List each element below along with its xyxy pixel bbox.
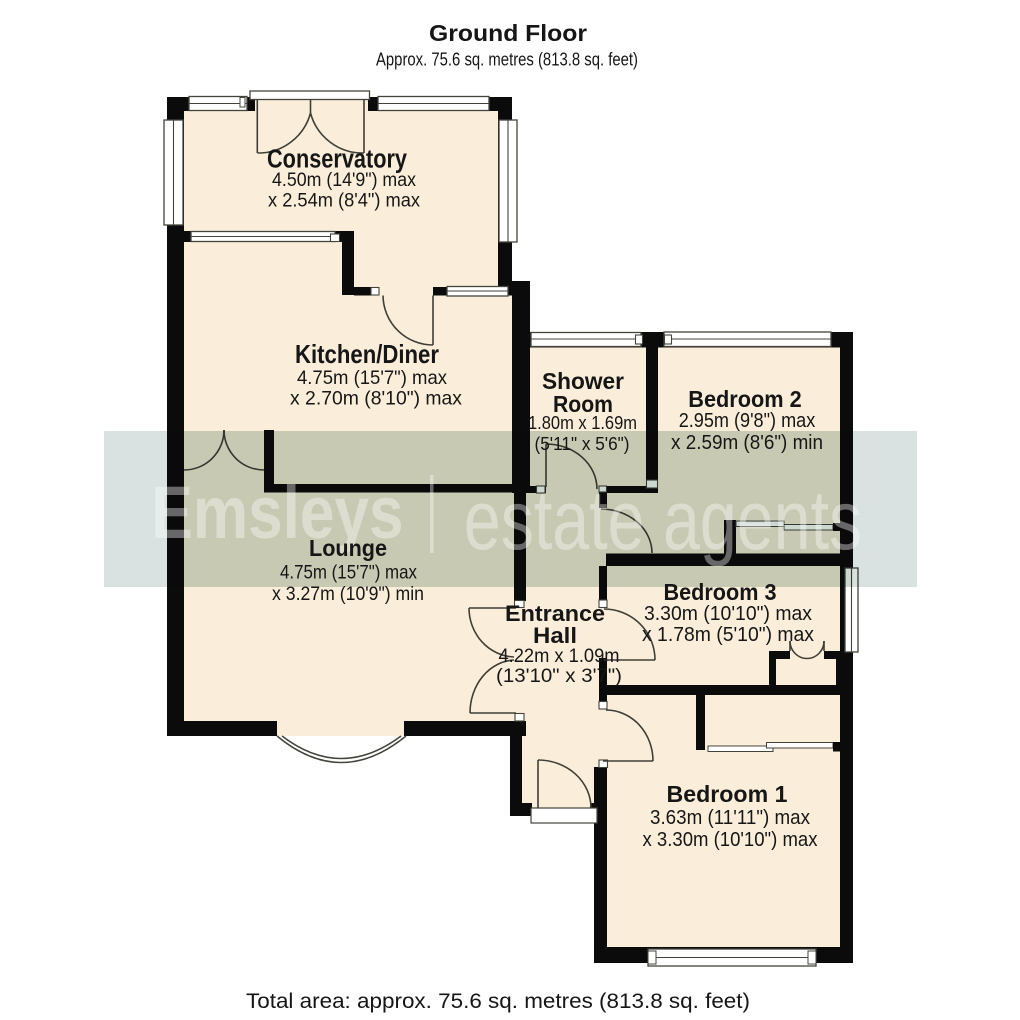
svg-text:x 3.30m (10'10") max: x 3.30m (10'10") max xyxy=(643,829,818,851)
svg-text:(5'11" x 5'6"): (5'11" x 5'6") xyxy=(535,433,630,454)
svg-text:Kitchen/Diner: Kitchen/Diner xyxy=(295,339,439,369)
svg-text:4.75m (15'7") max: 4.75m (15'7") max xyxy=(297,367,447,389)
svg-text:estate agents: estate agents xyxy=(464,474,862,568)
svg-text:3.63m (11'11") max: 3.63m (11'11") max xyxy=(650,807,810,829)
svg-text:Total area: approx. 75.6 sq. m: Total area: approx. 75.6 sq. metres (813… xyxy=(246,989,750,1013)
svg-text:Bedroom 2: Bedroom 2 xyxy=(688,386,802,412)
svg-text:4.50m (14'9") max: 4.50m (14'9") max xyxy=(272,170,416,191)
svg-text:3.30m (10'10") max: 3.30m (10'10") max xyxy=(644,603,812,625)
svg-text:x 2.59m (8'6") min: x 2.59m (8'6") min xyxy=(671,432,823,454)
svg-text:x 3.27m (10'9") min: x 3.27m (10'9") min xyxy=(272,583,424,605)
svg-text:4.75m (15'7") max: 4.75m (15'7") max xyxy=(280,562,417,584)
svg-text:Lounge: Lounge xyxy=(309,535,387,561)
svg-text:Bedroom 1: Bedroom 1 xyxy=(667,781,788,807)
svg-text:1.80m x 1.69m: 1.80m x 1.69m xyxy=(528,412,637,433)
svg-text:4.22m x 1.09m: 4.22m x 1.09m xyxy=(499,646,620,667)
svg-text:x 2.54m (8'4") max: x 2.54m (8'4") max xyxy=(268,191,420,212)
svg-text:Ground Floor: Ground Floor xyxy=(429,20,587,46)
svg-text:2.95m (9'8") max: 2.95m (9'8") max xyxy=(679,410,816,432)
svg-text:(13'10" x 3'7"): (13'10" x 3'7") xyxy=(496,666,622,687)
svg-text:x 1.78m (5'10") max: x 1.78m (5'10") max xyxy=(642,624,814,646)
svg-text:Bedroom 3: Bedroom 3 xyxy=(664,579,777,605)
svg-text:Hall: Hall xyxy=(533,623,577,648)
svg-text:Approx. 75.6 sq. metres (813.8: Approx. 75.6 sq. metres (813.8 sq. feet) xyxy=(376,49,638,70)
svg-text:x 2.70m (8'10") max: x 2.70m (8'10") max xyxy=(290,388,462,410)
